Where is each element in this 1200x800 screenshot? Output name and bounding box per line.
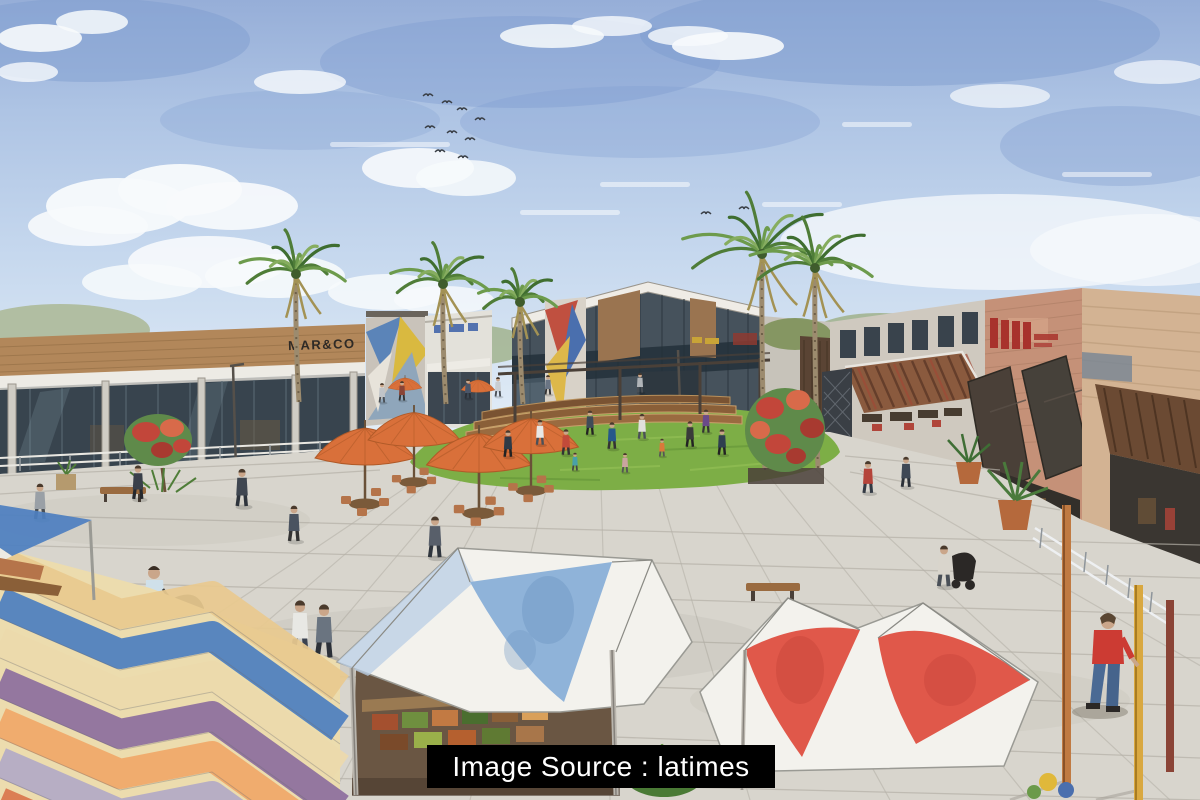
- palm-crown-center: [438, 279, 448, 289]
- cloud: [572, 16, 652, 36]
- figure-legs: [614, 441, 615, 449]
- palm-crown-center: [291, 269, 301, 279]
- figure-torso: [289, 514, 300, 531]
- bird-icon: [465, 138, 475, 140]
- bird-icon: [447, 131, 457, 133]
- figure-legs: [623, 467, 624, 473]
- scene-canvas: MAR&CO: [0, 0, 1200, 800]
- figure-torso: [608, 429, 616, 442]
- bird-icon: [701, 212, 711, 214]
- figure-legs: [550, 389, 551, 395]
- figure-torso: [637, 378, 643, 387]
- figure-torso: [718, 435, 726, 447]
- gray-awning: [1082, 352, 1132, 382]
- figure-legs: [290, 530, 292, 541]
- figure-legs: [939, 574, 941, 587]
- figure-legs: [500, 391, 501, 397]
- figure-torso: [638, 420, 646, 432]
- flowering-bush-right: [745, 388, 825, 484]
- figure-legs: [384, 397, 385, 403]
- cafe-chair: [357, 508, 367, 516]
- figure-legs: [703, 426, 704, 433]
- pedestrian-figure: [1165, 508, 1175, 530]
- cloud: [28, 206, 148, 246]
- figure-legs: [542, 437, 543, 445]
- pedestrian-figure: [495, 377, 504, 398]
- cafe-table: [399, 477, 428, 487]
- cloud: [166, 182, 298, 230]
- plaza-illustration: MAR&CO: [0, 0, 1200, 800]
- figure-torso: [292, 613, 309, 639]
- figure-legs: [708, 426, 709, 433]
- figure-torso: [702, 415, 709, 426]
- figure-legs: [587, 427, 588, 434]
- figure-legs: [537, 437, 538, 445]
- cloud-wisp: [1062, 172, 1152, 177]
- figure-legs: [644, 431, 645, 439]
- figure-torso: [572, 457, 578, 466]
- cafe-table: [349, 499, 381, 510]
- figure-torso: [399, 386, 405, 395]
- cafe-chair: [427, 477, 436, 484]
- cloud-wisp: [842, 122, 912, 127]
- figure-legs: [466, 393, 467, 399]
- figure-torso: [504, 437, 512, 450]
- figure-torso: [622, 458, 628, 467]
- figure-legs: [563, 447, 564, 455]
- cloud-wisp: [600, 182, 690, 187]
- figure-torso: [465, 384, 471, 393]
- figure-legs: [871, 483, 872, 493]
- sky: [0, 0, 1200, 314]
- figure-legs: [719, 447, 720, 455]
- cafe-chair: [537, 476, 547, 484]
- figure-torso: [236, 478, 248, 496]
- cloud: [416, 160, 516, 196]
- figure-torso: [938, 555, 951, 575]
- figure-legs: [237, 495, 239, 507]
- wood-panel: [598, 290, 640, 362]
- figure-torso: [562, 435, 570, 447]
- figure-legs: [864, 483, 865, 493]
- cafe-chair: [379, 498, 389, 506]
- figure-legs: [947, 574, 948, 587]
- cloud: [82, 264, 202, 300]
- figure-hair: [496, 377, 500, 379]
- figure-legs: [329, 641, 331, 658]
- palm-crown-center: [515, 297, 525, 307]
- cloud-wisp: [330, 142, 450, 147]
- figure-legs: [609, 441, 610, 449]
- figure-legs: [505, 449, 506, 457]
- figure-torso: [133, 473, 143, 489]
- figure-torso: [863, 469, 873, 484]
- figure-legs: [134, 489, 135, 499]
- cafe-chair: [392, 475, 401, 482]
- figure-legs: [297, 530, 298, 541]
- figure-legs: [546, 389, 547, 395]
- figure-torso: [686, 427, 694, 439]
- figure-torso: [536, 426, 544, 438]
- cloud: [1114, 60, 1200, 84]
- cloud: [0, 62, 58, 82]
- cafe-table: [462, 508, 496, 520]
- figure-legs: [380, 397, 381, 403]
- figure-legs: [642, 387, 643, 393]
- figure-legs: [909, 478, 910, 487]
- figure-legs: [639, 431, 640, 439]
- caption-text: Image Source : latimes: [452, 751, 749, 783]
- cafe-chair: [508, 483, 518, 491]
- wood-panel: [690, 298, 716, 358]
- cloud-wisp: [762, 202, 842, 207]
- figure-legs: [902, 478, 903, 487]
- cafe-chair: [407, 486, 416, 493]
- cafe-chair: [420, 468, 429, 475]
- figure-legs: [627, 467, 628, 473]
- cloud: [950, 84, 1050, 108]
- cafe-chair: [341, 496, 351, 504]
- cloud: [254, 70, 346, 94]
- cafe-chair: [371, 488, 381, 496]
- figure-legs: [438, 545, 439, 558]
- figure-torso: [586, 416, 593, 428]
- caption-bar: Image Source : latimes: [427, 745, 775, 788]
- figure-legs: [245, 495, 246, 507]
- figure-legs: [592, 427, 593, 434]
- figure-legs: [404, 395, 405, 401]
- cafe-table: [516, 485, 546, 495]
- red-banner: [733, 333, 757, 345]
- cafe-chair: [494, 507, 505, 515]
- figure-legs: [577, 465, 578, 471]
- sky-patch: [160, 90, 440, 150]
- figure-torso: [901, 464, 910, 478]
- figure-torso: [35, 492, 46, 509]
- bird-icon: [739, 207, 749, 209]
- figure-torso: [316, 617, 333, 643]
- cafe-chair: [523, 495, 533, 503]
- figure-torso: [659, 443, 665, 452]
- figure-legs: [692, 439, 693, 447]
- figure-legs: [638, 387, 639, 393]
- figure-legs: [568, 447, 569, 455]
- cafe-chair: [485, 497, 496, 505]
- figure-legs: [400, 395, 401, 401]
- figure-legs: [573, 465, 574, 471]
- figure-legs: [430, 545, 432, 558]
- figure-legs: [660, 451, 661, 457]
- figure-legs: [687, 439, 688, 447]
- cloud-wisp: [520, 210, 620, 215]
- figure-legs: [510, 449, 511, 457]
- figure-torso: [379, 388, 385, 397]
- figure-torso: [429, 526, 442, 546]
- cafe-chair: [544, 485, 554, 493]
- figure-legs: [496, 391, 497, 397]
- cloud: [648, 26, 728, 46]
- cloud: [56, 10, 128, 34]
- cafe-chair: [454, 505, 465, 513]
- palm-frond: [693, 248, 762, 268]
- figure-legs: [664, 451, 665, 457]
- gold-sign: [692, 337, 719, 344]
- cafe-chair: [471, 518, 482, 526]
- bird-icon: [457, 108, 467, 110]
- figure-torso: [545, 380, 551, 389]
- mural-panel: [366, 311, 428, 426]
- figure-torso: [495, 382, 501, 391]
- figure-legs: [141, 489, 142, 499]
- figure-legs: [470, 393, 471, 399]
- figure-legs: [724, 447, 725, 455]
- palm-crown-center: [810, 263, 820, 273]
- sky-patch: [460, 86, 820, 158]
